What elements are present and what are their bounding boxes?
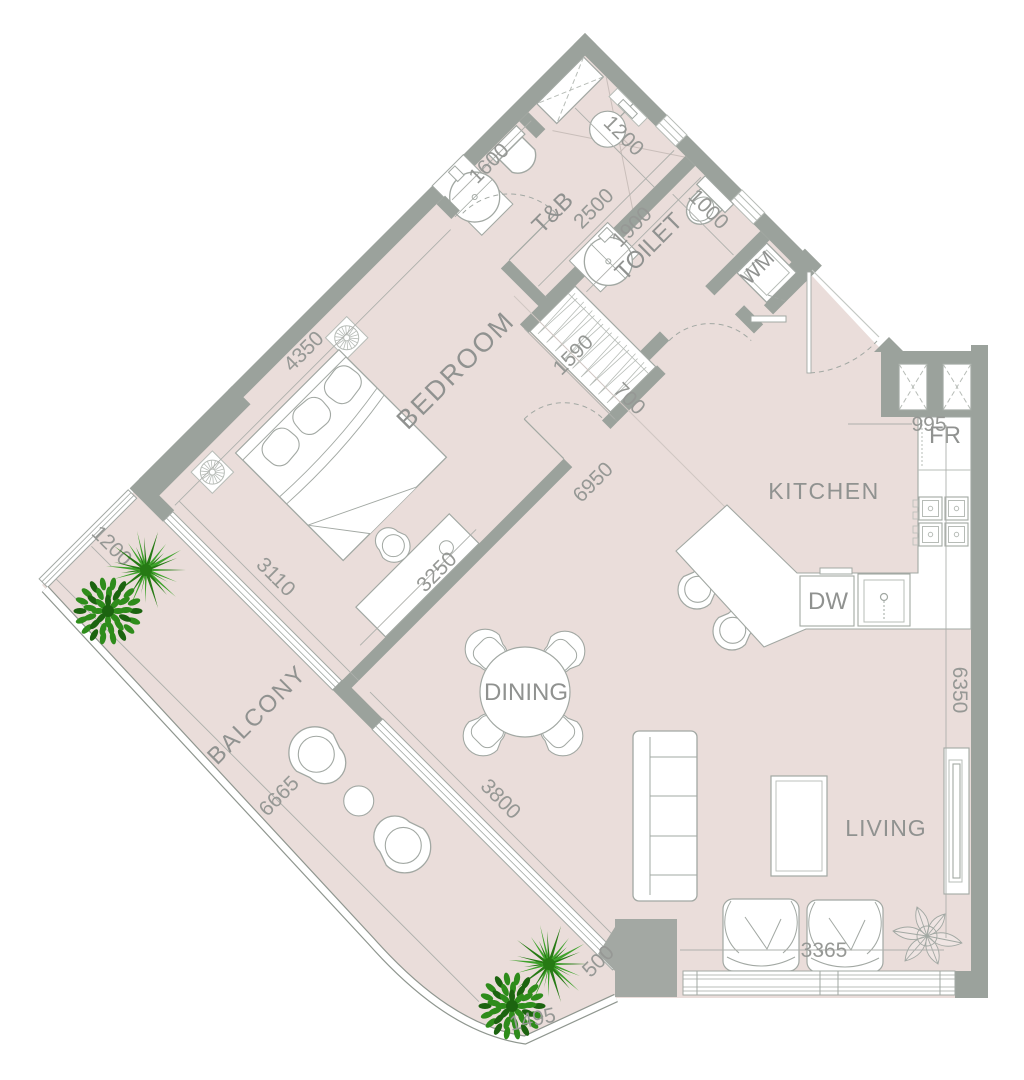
svg-text:6350: 6350	[948, 667, 971, 714]
svg-text:LIVING: LIVING	[845, 815, 926, 841]
svg-text:DINING: DINING	[484, 679, 568, 706]
svg-text:DW: DW	[808, 588, 848, 615]
svg-text:FR: FR	[929, 422, 961, 449]
svg-text:KITCHEN: KITCHEN	[768, 478, 879, 504]
svg-text:3365: 3365	[801, 939, 848, 962]
